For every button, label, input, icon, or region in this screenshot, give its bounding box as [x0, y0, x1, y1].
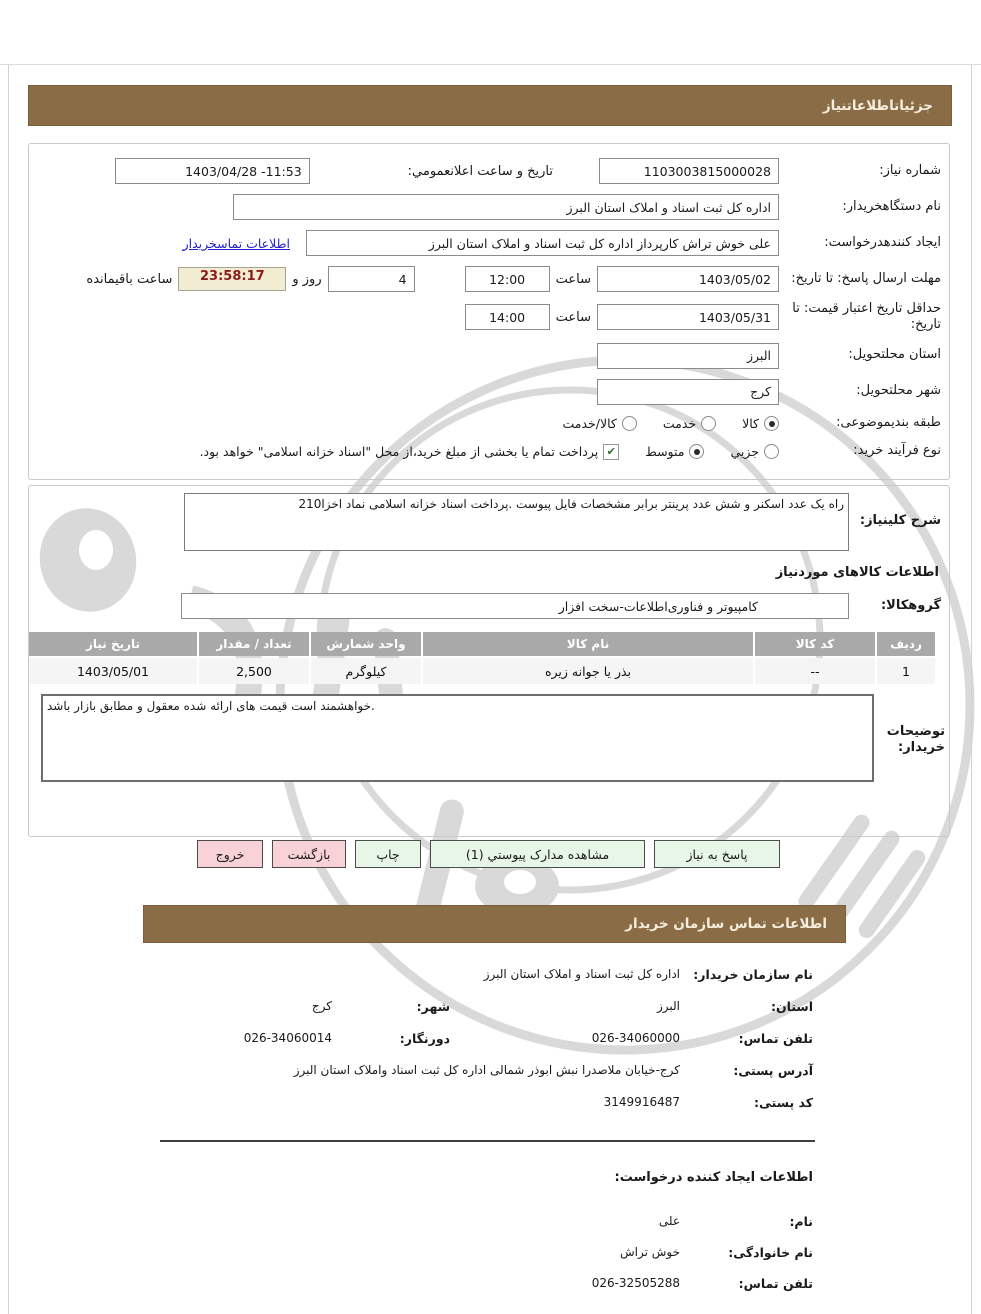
- announce-value: 1403/04/28 -11:53: [185, 164, 302, 179]
- row-reply-deadline: مهلت ارسال پاسخ: تا تاریخ: 1403/05/02 سا…: [29, 265, 949, 293]
- price-validity-time-field[interactable]: 14:00: [465, 304, 550, 330]
- page-left-border: [8, 64, 9, 1314]
- row-address: آدرس پستی: کرج-خیابان ملاصدرا نبش ابوذر …: [153, 1063, 813, 1080]
- goods-group-field[interactable]: کامپیوتر و فناوری‌اطلاعات-سخت افزار: [181, 593, 849, 619]
- delivery-province-value: البرز: [747, 348, 771, 363]
- buyer-org-field[interactable]: اداره کل ثبت اسناد و املاک استان البرز: [233, 194, 779, 220]
- price-validity-label: حداقل تاریخ اعتبار قیمت: تا تاریخ:: [779, 301, 949, 334]
- buyer-org-value: اداره کل ثبت اسناد و املاک استان البرز: [567, 200, 772, 215]
- radio-medium[interactable]: [689, 444, 704, 459]
- goods-group-value: کامپیوتر و فناوری‌اطلاعات-سخت افزار: [559, 599, 758, 614]
- creator-field[interactable]: علی خوش تراش کارپرداز اداره کل ثبت اسناد…: [306, 230, 779, 256]
- creator-label: ایجاد کنندهدرخواست:: [779, 235, 949, 251]
- province-value: البرز: [450, 999, 680, 1013]
- countdown-value: 23:58:17: [200, 267, 265, 290]
- city-label: شهر:: [332, 999, 450, 1014]
- contact-section-title: اطلاعات تماس سازمان خریدار: [625, 916, 845, 932]
- reply-deadline-label: مهلت ارسال پاسخ: تا تاریخ:: [779, 271, 949, 287]
- need-number-label: شماره نیاز:: [779, 163, 949, 179]
- row-buyer-notes: توضیحات خریدار: خواهشمند است قیمت های ار…: [29, 694, 949, 782]
- row-first-name: نام: علی: [153, 1214, 813, 1231]
- goods-table: ردیف کد کالا نام کالا واحد شمارش تعداد /…: [27, 630, 937, 686]
- row-buyer-org: نام دستگاهخریدار: اداره کل ثبت اسناد و ا…: [29, 193, 949, 221]
- fax-value: 026-34060014: [244, 1031, 332, 1045]
- postal-code-label: کد پستی:: [680, 1095, 813, 1110]
- creator-value: علی خوش تراش کارپرداز اداره کل ثبت اسناد…: [429, 236, 771, 251]
- col-item-name: نام کالا: [423, 632, 753, 656]
- creator-phone-value: 026-32505288: [592, 1276, 680, 1290]
- delivery-province-label: استان محلتحویل:: [779, 347, 949, 363]
- cell-item-name: بذر یا جوانه زیره: [423, 658, 753, 684]
- check-icon: ✔: [607, 445, 616, 458]
- exit-button[interactable]: خروج: [197, 840, 263, 868]
- buyer-org-label: نام دستگاهخریدار:: [779, 199, 949, 215]
- row-creator-phone: تلفن تماس: 026-32505288: [153, 1276, 813, 1293]
- cell-need-date: 1403/05/01: [29, 658, 197, 684]
- delivery-city-field[interactable]: کرج: [597, 379, 779, 405]
- cell-row-number: 1: [877, 658, 935, 684]
- view-attached-documents-button[interactable]: مشاهده مدارک پیوستي (1): [430, 840, 645, 868]
- remaining-hours-label: ساعت باقیمانده: [80, 272, 178, 287]
- row-postal-code: کد پستی: 3149916487: [153, 1095, 813, 1112]
- first-name-value: علی: [450, 1214, 680, 1228]
- radio-service-label: خدمت: [663, 416, 696, 431]
- cell-quantity: 2,500: [199, 658, 309, 684]
- need-number-value: 1103003815000028: [644, 164, 771, 179]
- reply-deadline-date: 1403/05/02: [699, 272, 771, 287]
- radio-service[interactable]: [701, 416, 716, 431]
- cell-unit: کیلوگرم: [311, 658, 421, 684]
- reply-to-need-button[interactable]: پاسخ به نیاز: [654, 840, 780, 868]
- goods-table-header-row: ردیف کد کالا نام کالا واحد شمارش تعداد /…: [29, 632, 935, 656]
- need-description-textarea[interactable]: راه یک عدد اسکنر و شش عدد پرینتر برابر م…: [184, 493, 849, 551]
- creator-phone-label: تلفن تماس:: [680, 1276, 813, 1291]
- address-value: کرج-خیابان ملاصدرا نبش ابوذر شمالی اداره…: [160, 1063, 680, 1077]
- price-validity-time: 14:00: [489, 310, 525, 325]
- section-header-buyer-contact: اطلاعات تماس سازمان خریدار: [143, 905, 846, 943]
- postal-code-value: 3149916487: [604, 1095, 680, 1109]
- subject-class-label: طبقه بندیموضوعی:: [779, 415, 949, 431]
- radio-minor-label: جزیي: [730, 444, 759, 459]
- radio-goods-label: کالا: [742, 416, 759, 431]
- need-number-field[interactable]: 1103003815000028: [599, 158, 779, 184]
- row-need-description: شرح کلینیاز: راه یک عدد اسکنر و شش عدد پ…: [29, 493, 949, 551]
- last-name-value: خوش تراش: [450, 1245, 680, 1259]
- row-request-creator: ایجاد کنندهدرخواست: علی خوش تراش کارپردا…: [29, 229, 949, 257]
- last-name-label: نام خانوادگی:: [680, 1245, 813, 1260]
- price-validity-hour-label: ساعت: [550, 310, 597, 325]
- first-name-label: نام:: [680, 1214, 813, 1229]
- reply-deadline-time: 12:00: [489, 272, 525, 287]
- col-need-date: تاریخ نیاز: [29, 632, 197, 656]
- purchase-process-label: نوع فرآیند خرید:: [779, 443, 949, 459]
- price-validity-date-field[interactable]: 1403/05/31: [597, 304, 779, 330]
- treasury-checkbox[interactable]: ✔: [603, 444, 619, 460]
- row-phone-fax: تلفن تماس: 026-34060000 دورنگار: 026-340…: [153, 1031, 813, 1048]
- delivery-city-label: شهر محلتحویل:: [779, 383, 949, 399]
- col-row-number: ردیف: [877, 632, 935, 656]
- row-delivery-province: استان محلتحویل: البرز: [29, 342, 949, 370]
- fax-label: دورنگار:: [332, 1031, 450, 1046]
- row-purchase-process: نوع فرآیند خرید: جزیي متوسط ✔ پرداخت تما…: [29, 442, 949, 462]
- city-value: کرج: [312, 999, 332, 1013]
- days-unit-label: روز و: [286, 272, 327, 287]
- need-description-text: راه یک عدد اسکنر و شش عدد پرینتر برابر م…: [298, 497, 844, 511]
- radio-goods-service[interactable]: [622, 416, 637, 431]
- treasury-checkbox-label: پرداخت تمام یا بخشی از مبلغ خرید،از محل …: [200, 444, 599, 459]
- buyer-contact-info: نام سازمان خریدار: اداره کل ثبت اسناد و …: [153, 952, 813, 1112]
- creator-info-title: اطلاعات ایجاد کننده درخواست:: [615, 1170, 813, 1185]
- radio-minor[interactable]: [764, 444, 779, 459]
- top-whitespace: [0, 0, 981, 65]
- print-button[interactable]: چاپ: [355, 840, 421, 868]
- page-right-border: [971, 64, 972, 1314]
- province-label: استان:: [680, 999, 813, 1014]
- goods-panel: شرح کلینیاز: راه یک عدد اسکنر و شش عدد پ…: [28, 485, 950, 837]
- row-last-name: نام خانوادگی: خوش تراش: [153, 1245, 813, 1262]
- buyer-notes-label: توضیحات خریدار:: [874, 694, 949, 757]
- col-item-code: کد کالا: [755, 632, 875, 656]
- remaining-days-value: 4: [399, 272, 407, 287]
- goods-group-label: گروهکالا:: [849, 598, 949, 614]
- row-province-city: استان: البرز شهر: کرج: [153, 999, 813, 1016]
- phone-label: تلفن تماس:: [680, 1031, 813, 1046]
- need-details-page: { "page": { "title_bar": "جزئیاتاطلاعاتن…: [0, 0, 981, 1314]
- row-need-number: شماره نیاز: 1103003815000028 تاریخ و ساع…: [29, 157, 949, 185]
- row-delivery-city: شهر محلتحویل: کرج: [29, 378, 949, 406]
- buyer-contact-link[interactable]: اطلاعات تماسخریدار: [183, 236, 290, 251]
- announce-field[interactable]: 1403/04/28 -11:53: [115, 158, 310, 184]
- need-description-label: شرح کلینیاز:: [849, 493, 949, 529]
- section-title: جزئیاتاطلاعاتنیاز: [823, 98, 951, 114]
- reply-deadline-hour-label: ساعت: [550, 272, 597, 287]
- delivery-city-value: کرج: [750, 384, 771, 399]
- reply-deadline-time-field[interactable]: 12:00: [465, 266, 550, 292]
- back-button[interactable]: بازگشت: [272, 840, 346, 868]
- row-goods-group: گروهکالا: کامپیوتر و فناوری‌اطلاعات-سخت …: [29, 592, 949, 620]
- radio-goods[interactable]: [764, 416, 779, 431]
- address-label: آدرس پستی:: [680, 1063, 813, 1078]
- org-name-label: نام سازمان خریدار:: [680, 967, 813, 982]
- row-subject-class: طبقه بندیموضوعی: کالا خدمت کالا/خدمت: [29, 414, 949, 434]
- radio-goods-service-label: کالا/خدمت: [562, 416, 616, 431]
- creator-contact-info: نام: علی نام خانوادگی: خوش تراش تلفن تما…: [153, 1200, 813, 1293]
- col-quantity: تعداد / مقدار: [199, 632, 309, 656]
- section-header-need-details: جزئیاتاطلاعاتنیاز: [28, 85, 952, 126]
- remaining-days-field[interactable]: 4: [328, 266, 415, 292]
- buyer-notes-text: خواهشمند است قیمت های ارائه شده معقول و …: [47, 699, 375, 713]
- need-info-panel: شماره نیاز: 1103003815000028 تاریخ و ساع…: [28, 143, 950, 480]
- buyer-notes-textarea[interactable]: خواهشمند است قیمت های ارائه شده معقول و …: [41, 694, 874, 782]
- goods-info-title: اطلاعات کالاهای موردنیاز: [29, 551, 949, 584]
- price-validity-date: 1403/05/31: [699, 310, 771, 325]
- announce-label: تاریخ و ساعت اعلانعمومي:: [402, 164, 559, 179]
- countdown-timer: 23:58:17: [178, 267, 286, 291]
- reply-deadline-date-field[interactable]: 1403/05/02: [597, 266, 779, 292]
- org-name-value: اداره کل ثبت اسناد و املاک استان البرز: [260, 967, 680, 981]
- action-buttons-row: پاسخ به نیاز مشاهده مدارک پیوستي (1) چاپ…: [0, 840, 981, 868]
- row-price-validity: حداقل تاریخ اعتبار قیمت: تا تاریخ: 1403/…: [29, 301, 949, 334]
- section-divider-line: [160, 1140, 815, 1142]
- phone-value: 026-34060000: [592, 1031, 680, 1045]
- row-org-name: نام سازمان خریدار: اداره کل ثبت اسناد و …: [153, 967, 813, 984]
- cell-item-code: --: [755, 658, 875, 684]
- delivery-province-field[interactable]: البرز: [597, 343, 779, 369]
- goods-table-row: 1 -- بذر یا جوانه زیره کیلوگرم 2,500 140…: [29, 658, 935, 684]
- radio-medium-label: متوسط: [645, 444, 684, 459]
- col-unit: واحد شمارش: [311, 632, 421, 656]
